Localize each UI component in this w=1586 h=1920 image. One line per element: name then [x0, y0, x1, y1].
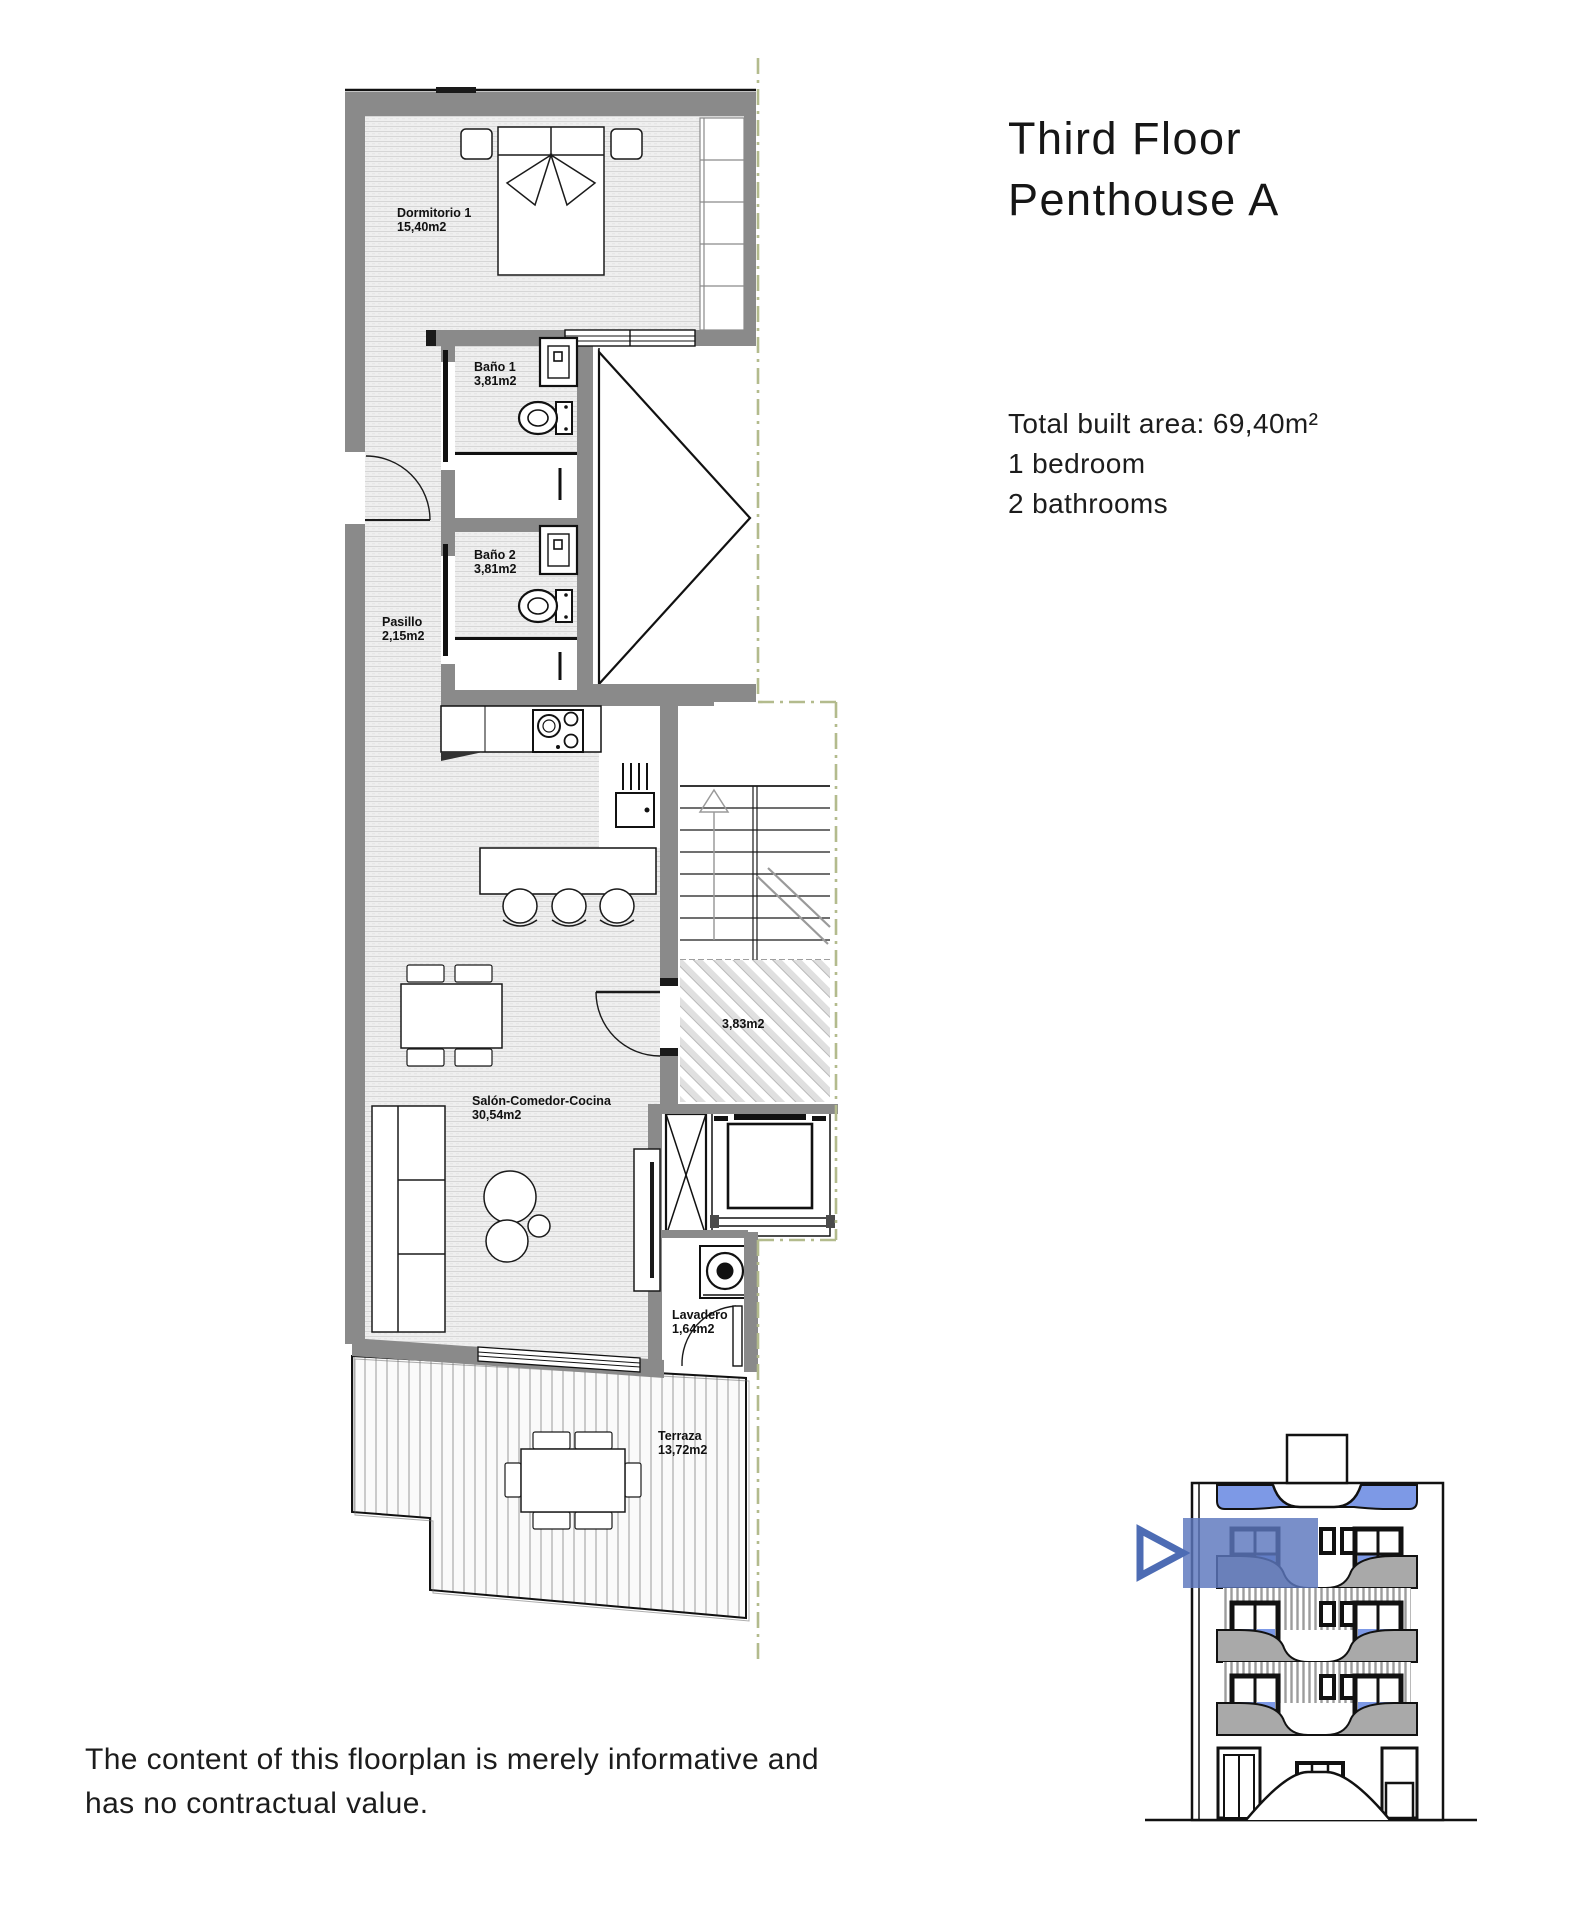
bathroom-count: 2 bathrooms	[1008, 484, 1318, 524]
unit-summary: Total built area: 69,40m² 1 bedroom 2 ba…	[1008, 404, 1318, 524]
bathroom1-sliding-door	[441, 350, 455, 470]
label-pasillo: Pasillo 2,15m2	[382, 616, 424, 643]
hob	[533, 710, 583, 752]
bedroom-count: 1 bedroom	[1008, 444, 1318, 484]
elevator	[666, 1112, 835, 1236]
shower-2	[455, 637, 577, 690]
room-name: Baño 2	[474, 549, 516, 563]
room-area: 3,81m2	[474, 375, 516, 389]
page-title: Third Floor Penthouse A	[1008, 108, 1280, 230]
bar-stools	[503, 889, 634, 926]
toilet-2	[519, 590, 572, 622]
label-dormitorio: Dormitorio 1 15,40m2	[397, 207, 471, 234]
terrace	[352, 1356, 749, 1621]
label-bano2: Baño 2 3,81m2	[474, 549, 516, 576]
disclaimer: The content of this floorplan is merely …	[85, 1738, 819, 1826]
nightstand-right	[611, 129, 642, 159]
room-area: 13,72m2	[658, 1444, 707, 1458]
room-area: 30,54m2	[472, 1109, 611, 1123]
room-name: Pasillo	[382, 616, 424, 630]
room-name: Salón-Comedor-Cocina	[472, 1095, 611, 1109]
room-area: 15,40m2	[397, 221, 471, 235]
tv-bench	[634, 1149, 660, 1291]
title-line-1: Third Floor	[1008, 108, 1280, 169]
shower-1	[455, 452, 577, 516]
room-area: 3,83m2	[722, 1018, 764, 1032]
room-name: Lavadero	[672, 1309, 728, 1323]
label-lavadero: Lavadero 1,64m2	[672, 1309, 728, 1336]
bed	[498, 127, 604, 275]
sink-1	[540, 338, 577, 386]
label-bano1: Baño 1 3,81m2	[474, 361, 516, 388]
floorplan-page: Dormitorio 1 15,40m2 Baño 1 3,81m2 Baño …	[0, 0, 1586, 1920]
wall-left	[345, 92, 365, 1344]
bathroom2-sliding-door	[441, 544, 455, 664]
wall-laundry-top	[662, 1230, 748, 1238]
unit-location-pointer-icon	[1140, 1530, 1183, 1576]
unit-highlight	[1183, 1518, 1318, 1588]
total-built-area: Total built area: 69,40m²	[1008, 404, 1318, 444]
disclaimer-line-2: has no contractual value.	[85, 1782, 819, 1826]
room-name: Dormitorio 1	[397, 207, 471, 221]
nightstand-left	[461, 129, 492, 159]
sofa	[372, 1106, 445, 1332]
sink-2	[540, 526, 577, 574]
room-area: 2,15m2	[382, 630, 424, 644]
laundry-door-leaf	[733, 1306, 742, 1366]
room-area: 1,64m2	[672, 1323, 728, 1337]
bedroom-window	[565, 330, 695, 346]
roof-box	[1287, 1435, 1347, 1483]
room-name: Terraza	[658, 1430, 707, 1444]
wall-living-right-lower	[660, 1056, 678, 1104]
room-name: Baño 1	[474, 361, 516, 375]
washing-machine	[700, 1246, 750, 1298]
title-line-2: Penthouse A	[1008, 169, 1280, 230]
label-terraza: Terraza 13,72m2	[658, 1430, 707, 1457]
kitchen-island	[480, 848, 656, 894]
wall-bedroom-right	[744, 116, 756, 346]
label-salon: Salón-Comedor-Cocina 30,54m2	[472, 1095, 611, 1122]
wall-top	[345, 92, 756, 116]
wall-bath-right	[577, 346, 593, 690]
toilet-1	[519, 402, 572, 434]
wall-laundry-right	[744, 1232, 758, 1372]
wardrobe	[700, 118, 744, 330]
label-landing: 3,83m2	[722, 1018, 764, 1032]
room-area: 3,81m2	[474, 563, 516, 577]
wall-elevator-top	[660, 1104, 838, 1114]
top-parapet	[1217, 1485, 1417, 1509]
laundry-room	[662, 1236, 750, 1372]
disclaimer-line-1: The content of this floorplan is merely …	[85, 1738, 819, 1782]
building-elevation-icon	[1128, 1396, 1488, 1830]
wall-living-right-upper	[660, 690, 678, 986]
